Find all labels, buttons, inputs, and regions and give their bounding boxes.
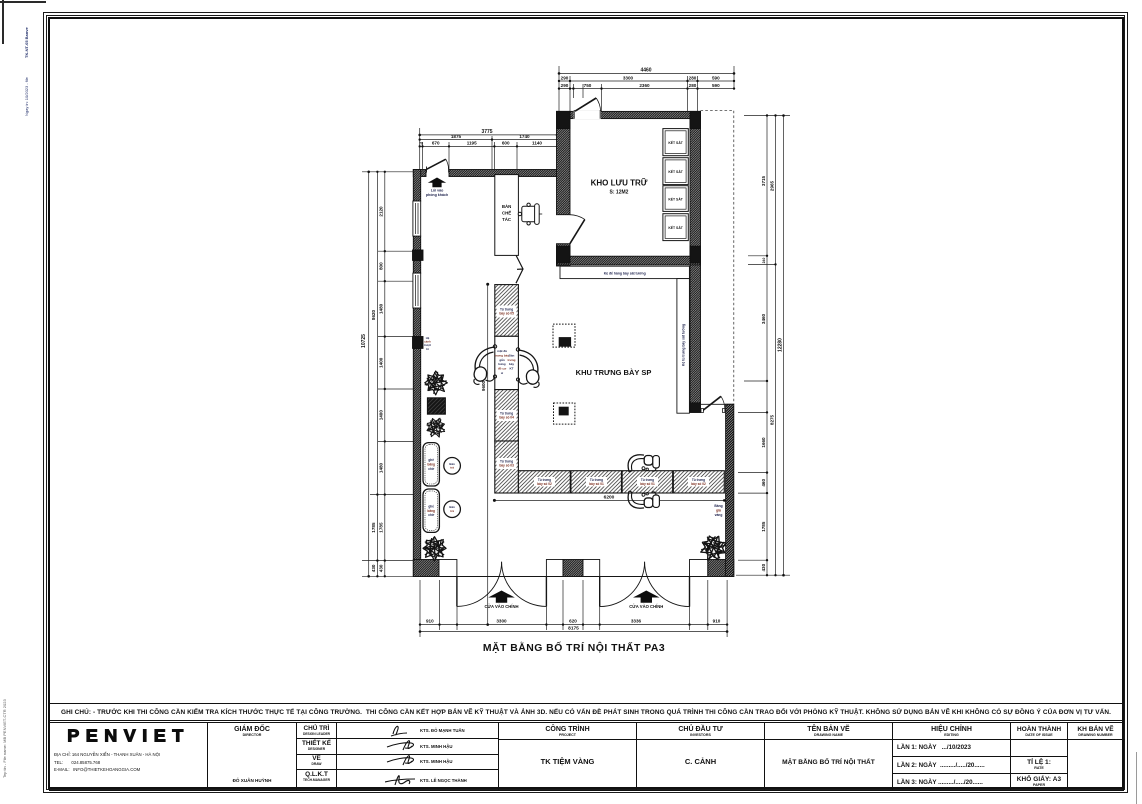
svg-text:430: 430 (379, 564, 384, 572)
svg-text:1480: 1480 (379, 462, 384, 473)
svg-text:12280: 12280 (777, 338, 783, 352)
svg-text:1785: 1785 (371, 522, 376, 533)
svg-text:430: 430 (371, 564, 376, 572)
svg-text:băng: băng (427, 509, 435, 513)
svg-text:KÉT SẮT: KÉT SẮT (668, 169, 683, 174)
svg-text:1195: 1195 (467, 141, 477, 146)
svg-text:S: 12M2: S: 12M2 (610, 190, 629, 196)
svg-text:mặt đá: mặt đá (497, 349, 507, 353)
svg-text:430: 430 (761, 563, 766, 571)
svg-text:trưng: trưng (507, 358, 515, 362)
svg-text:bày số 02: bày số 02 (691, 482, 706, 486)
svg-text:590: 590 (712, 75, 720, 80)
svg-text:Lối vào: Lối vào (431, 189, 444, 193)
svg-text:750: 750 (584, 83, 592, 88)
svg-text:ghế: ghế (428, 458, 434, 462)
svg-text:800: 800 (379, 262, 384, 270)
svg-text:băng: băng (427, 462, 435, 466)
svg-text:10725: 10725 (361, 334, 367, 348)
svg-text:bày số 01: bày số 01 (589, 482, 604, 486)
svg-text:CỬA VÀO CHÍNH: CỬA VÀO CHÍNH (629, 604, 663, 609)
svg-text:chờ: chờ (428, 513, 435, 517)
svg-text:Kệ để hàng bày sát tường: Kệ để hàng bày sát tường (604, 271, 646, 275)
svg-text:280: 280 (689, 83, 697, 88)
svg-text:670: 670 (432, 141, 440, 146)
svg-text:3300: 3300 (496, 619, 507, 624)
svg-text:600: 600 (502, 141, 510, 146)
svg-text:1875: 1875 (451, 134, 462, 139)
svg-text:bảng: bảng (498, 362, 505, 366)
svg-text:1740: 1740 (519, 134, 530, 139)
svg-text:KÉT SẮT: KÉT SẮT (668, 197, 683, 202)
svg-text:gắn: gắn (499, 357, 505, 362)
svg-text:2120: 2120 (379, 206, 384, 217)
svg-text:3336: 3336 (631, 619, 642, 624)
svg-text:trà: trà (450, 509, 454, 513)
svg-text:KHU TRƯNG BÀY SP: KHU TRƯNG BÀY SP (576, 368, 652, 377)
svg-text:bày số 03: bày số 03 (499, 464, 514, 468)
svg-text:4460: 4460 (640, 68, 651, 74)
svg-text:3715: 3715 (761, 175, 766, 186)
svg-text:290: 290 (561, 75, 569, 80)
svg-text:bày số 01: bày số 01 (640, 482, 655, 486)
svg-text:9600: 9600 (481, 380, 486, 391)
svg-text:kt: kt (426, 347, 429, 351)
svg-text:1785: 1785 (761, 521, 766, 532)
svg-text:ghế: ghế (428, 504, 434, 508)
svg-text:MẶT BẰNG BỐ TRÍ NỘI THẤT PA3: MẶT BẰNG BỐ TRÍ NỘI THẤT PA3 (483, 640, 665, 654)
svg-text:Bảng: Bảng (714, 504, 722, 508)
svg-text:1400: 1400 (379, 410, 384, 421)
svg-text:620: 620 (569, 619, 577, 624)
svg-text:910: 910 (713, 619, 721, 624)
svg-text:460: 460 (761, 479, 766, 487)
svg-text:1400: 1400 (379, 357, 384, 368)
svg-text:590: 590 (712, 83, 720, 88)
svg-text:bày số 02: bày số 02 (537, 482, 552, 486)
svg-text:KÉT SẮT: KÉT SẮT (668, 225, 683, 230)
svg-text:vàng: vàng (715, 513, 723, 517)
svg-text:KT: KT (510, 367, 514, 371)
svg-text:CỬA VÀO CHÍNH: CỬA VÀO CHÍNH (484, 604, 518, 609)
svg-text:2360: 2360 (639, 83, 650, 88)
svg-text:KÉT SẮT: KÉT SẮT (668, 140, 683, 145)
svg-text:3460: 3460 (761, 313, 766, 324)
svg-text:910: 910 (426, 619, 434, 624)
svg-text:8620: 8620 (371, 309, 376, 320)
svg-text:KHO LƯU TRỮ: KHO LƯU TRỮ (591, 179, 648, 188)
svg-text:Bàn: Bàn (509, 353, 515, 357)
svg-text:1785: 1785 (379, 522, 384, 533)
svg-text:sỉ: sỉ (501, 371, 504, 375)
svg-text:CHẾ: CHẾ (502, 211, 511, 216)
svg-text:phòng khách: phòng khách (426, 193, 448, 197)
svg-text:chờ: chờ (428, 467, 435, 471)
svg-text:trưng bày: trưng bày (495, 353, 509, 357)
svg-text:3775: 3775 (481, 129, 492, 135)
svg-text:8175: 8175 (568, 626, 579, 632)
svg-text:bày: bày (509, 362, 515, 366)
svg-text:290: 290 (561, 83, 569, 88)
svg-text:1140: 1140 (532, 141, 542, 146)
svg-text:2965: 2965 (769, 180, 774, 191)
svg-text:bày số 04: bày số 04 (499, 416, 514, 420)
svg-text:Kệ tủ trưng bày sát tường: Kệ tủ trưng bày sát tường (682, 324, 686, 366)
svg-text:bày số 05: bày số 05 (499, 312, 514, 316)
svg-text:280: 280 (689, 75, 697, 80)
svg-text:đồ cư: đồ cư (498, 367, 507, 371)
svg-text:giá: giá (716, 508, 721, 512)
svg-text:TÁC: TÁC (502, 217, 512, 222)
svg-text:8275: 8275 (769, 414, 774, 425)
svg-text:240: 240 (762, 258, 766, 264)
svg-text:70: 70 (419, 142, 423, 146)
svg-text:1660: 1660 (761, 437, 766, 448)
svg-text:trà: trà (450, 466, 454, 470)
svg-text:3300: 3300 (623, 75, 634, 80)
svg-text:BÀN: BÀN (502, 204, 512, 209)
svg-text:6200: 6200 (604, 495, 615, 501)
svg-text:1480: 1480 (379, 303, 384, 314)
